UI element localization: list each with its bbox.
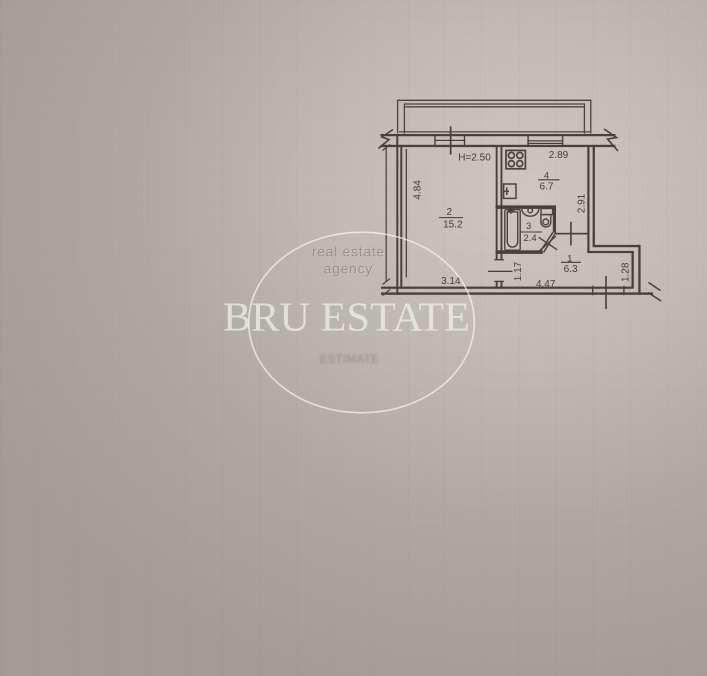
svg-text:2: 2 — [447, 207, 453, 218]
svg-text:1: 1 — [567, 254, 572, 265]
svg-text:ESTIMATE: ESTIMATE — [319, 354, 379, 366]
svg-text:H=2.50: H=2.50 — [458, 153, 491, 164]
svg-text:real estate: real estate — [312, 244, 385, 260]
svg-text:2.89: 2.89 — [549, 150, 569, 161]
svg-text:1.28: 1.28 — [620, 262, 631, 282]
svg-text:2.4: 2.4 — [523, 233, 537, 244]
svg-text:6.7: 6.7 — [540, 181, 554, 192]
svg-text:1.17: 1.17 — [513, 261, 524, 281]
svg-text:3: 3 — [526, 221, 531, 232]
svg-text:2.91: 2.91 — [576, 193, 587, 213]
svg-text:agency: agency — [324, 261, 373, 277]
svg-text:15.2: 15.2 — [443, 220, 463, 231]
svg-text:4.47: 4.47 — [536, 279, 556, 290]
svg-text:3.14: 3.14 — [441, 276, 461, 287]
svg-text:BRU ESTATE: BRU ESTATE — [223, 294, 470, 340]
svg-text:6.3: 6.3 — [564, 264, 578, 275]
svg-text:4.84: 4.84 — [412, 180, 423, 200]
